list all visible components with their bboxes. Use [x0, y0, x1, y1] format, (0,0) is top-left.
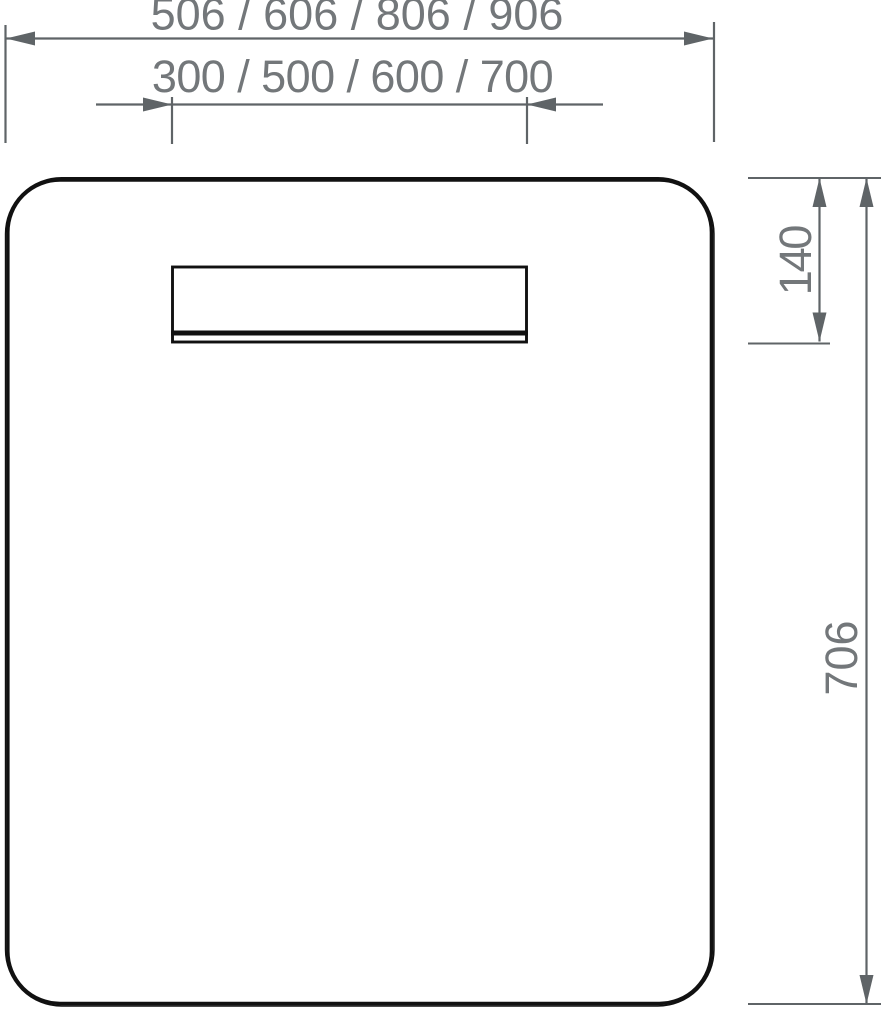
svg-text:300 / 500 / 600 / 700: 300 / 500 / 600 / 700 — [152, 51, 553, 102]
svg-text:506 / 606 / 806 / 906: 506 / 606 / 806 / 906 — [151, 0, 564, 40]
svg-text:706: 706 — [816, 620, 867, 695]
svg-text:140: 140 — [770, 226, 821, 296]
